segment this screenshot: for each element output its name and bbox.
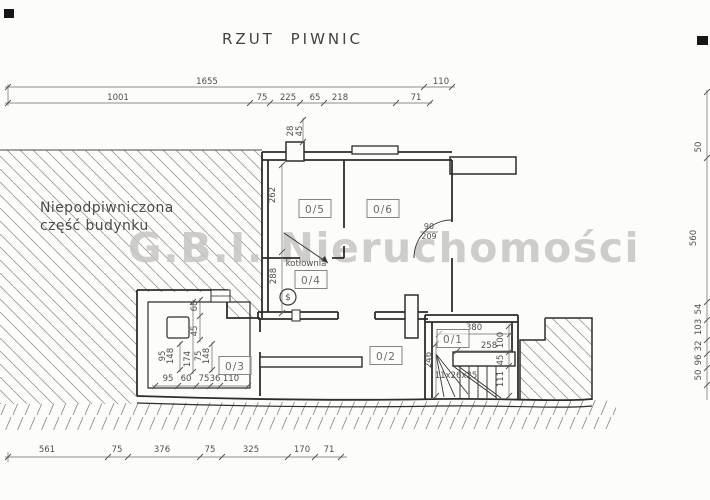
area-note-line2: część budynku	[40, 218, 149, 234]
wall-vent-marker	[292, 310, 300, 321]
dim-label: 288	[269, 268, 279, 284]
dim-label: 54	[694, 304, 704, 315]
dim-label: 110	[433, 77, 449, 87]
scan-mark-right	[697, 36, 708, 45]
dim-label: 68	[190, 301, 200, 312]
room-label-text: 0/5	[305, 204, 325, 216]
dim-label: 148	[166, 348, 176, 364]
room-label-text: 0/3	[225, 361, 245, 373]
wall-top-right-bay	[450, 157, 516, 174]
dim-label: 148	[202, 348, 212, 364]
flue-box	[167, 317, 189, 338]
dim-label: 325	[243, 445, 259, 455]
room-label-0-1: 0/1	[437, 330, 469, 348]
dim-label: 75	[257, 93, 268, 103]
hatch-terrain-band	[0, 400, 616, 430]
dim-label: 218	[332, 93, 348, 103]
dim-label: 65	[310, 93, 321, 103]
room-label-0-4: 0/4	[295, 271, 327, 289]
dim-label: 75	[199, 374, 210, 384]
room-label-text: 0/1	[443, 334, 463, 346]
plan-annotation: 90	[424, 222, 434, 231]
dim-label: 95	[163, 374, 174, 384]
dim-label: 50	[694, 142, 704, 153]
room-label-text: 0/4	[301, 275, 321, 287]
dim-label: 560	[689, 230, 699, 246]
plan-annotation: 209	[421, 232, 436, 241]
dim-label: 71	[411, 93, 422, 103]
dim-label: 225	[280, 93, 296, 103]
room-label-0-2: 0/2	[370, 347, 402, 365]
dim-label: 50	[694, 370, 704, 381]
scan-mark-top-left	[4, 9, 14, 18]
dim-label: 561	[39, 445, 55, 455]
wall-pier	[405, 295, 418, 338]
dim-label: 376	[154, 445, 170, 455]
room-label-0-3: 0/3	[219, 357, 251, 375]
dim-label: 110	[223, 374, 239, 384]
room-label-text: 0/6	[373, 204, 393, 216]
dim-label: 100	[496, 332, 506, 348]
room-label-text: 0/2	[376, 351, 396, 363]
floor-plan-page: G.B.I. Nieruchomości	[0, 0, 710, 500]
dim-label: 1655	[196, 77, 218, 87]
dim-label: 36	[210, 374, 221, 384]
room-label-0-5: 0/5	[299, 200, 331, 218]
dim-label: 71	[324, 445, 335, 455]
dim-label: 174	[183, 351, 193, 367]
dim-label: 45	[496, 355, 506, 366]
dim-label: 258	[481, 341, 497, 351]
dim-label: 45	[295, 126, 305, 137]
watermark-text: G.B.I. Nieruchomości	[128, 224, 640, 272]
wall-corridor-south	[260, 357, 362, 367]
dim-label: 170	[294, 445, 310, 455]
dim-label: 60	[181, 374, 192, 384]
dim-label: 45	[190, 326, 200, 337]
dim-label: 111	[496, 371, 506, 387]
dim-label: 103	[694, 319, 704, 335]
dim-label: 262	[268, 187, 278, 203]
dim-label: 75	[112, 445, 123, 455]
chimney	[286, 142, 304, 161]
page-title: RZUT PIWNIC	[222, 30, 363, 48]
floor-plan-svg: G.B.I. Nieruchomości	[0, 0, 710, 500]
dim-label: 32	[694, 341, 704, 352]
dim-label: 75	[205, 445, 216, 455]
dim-label: 96	[694, 355, 704, 366]
dim-label: 246	[424, 352, 434, 368]
room-label-0-6: 0/6	[367, 200, 399, 218]
plan-annotation: $	[285, 293, 291, 303]
wall-top-window	[352, 146, 398, 154]
area-note-line1: Niepodpiwniczona	[40, 200, 174, 216]
plan-annotation: 11x26x25	[435, 371, 478, 381]
dim-label: 1001	[107, 93, 129, 103]
plan-annotation: kotłownia	[286, 259, 327, 269]
